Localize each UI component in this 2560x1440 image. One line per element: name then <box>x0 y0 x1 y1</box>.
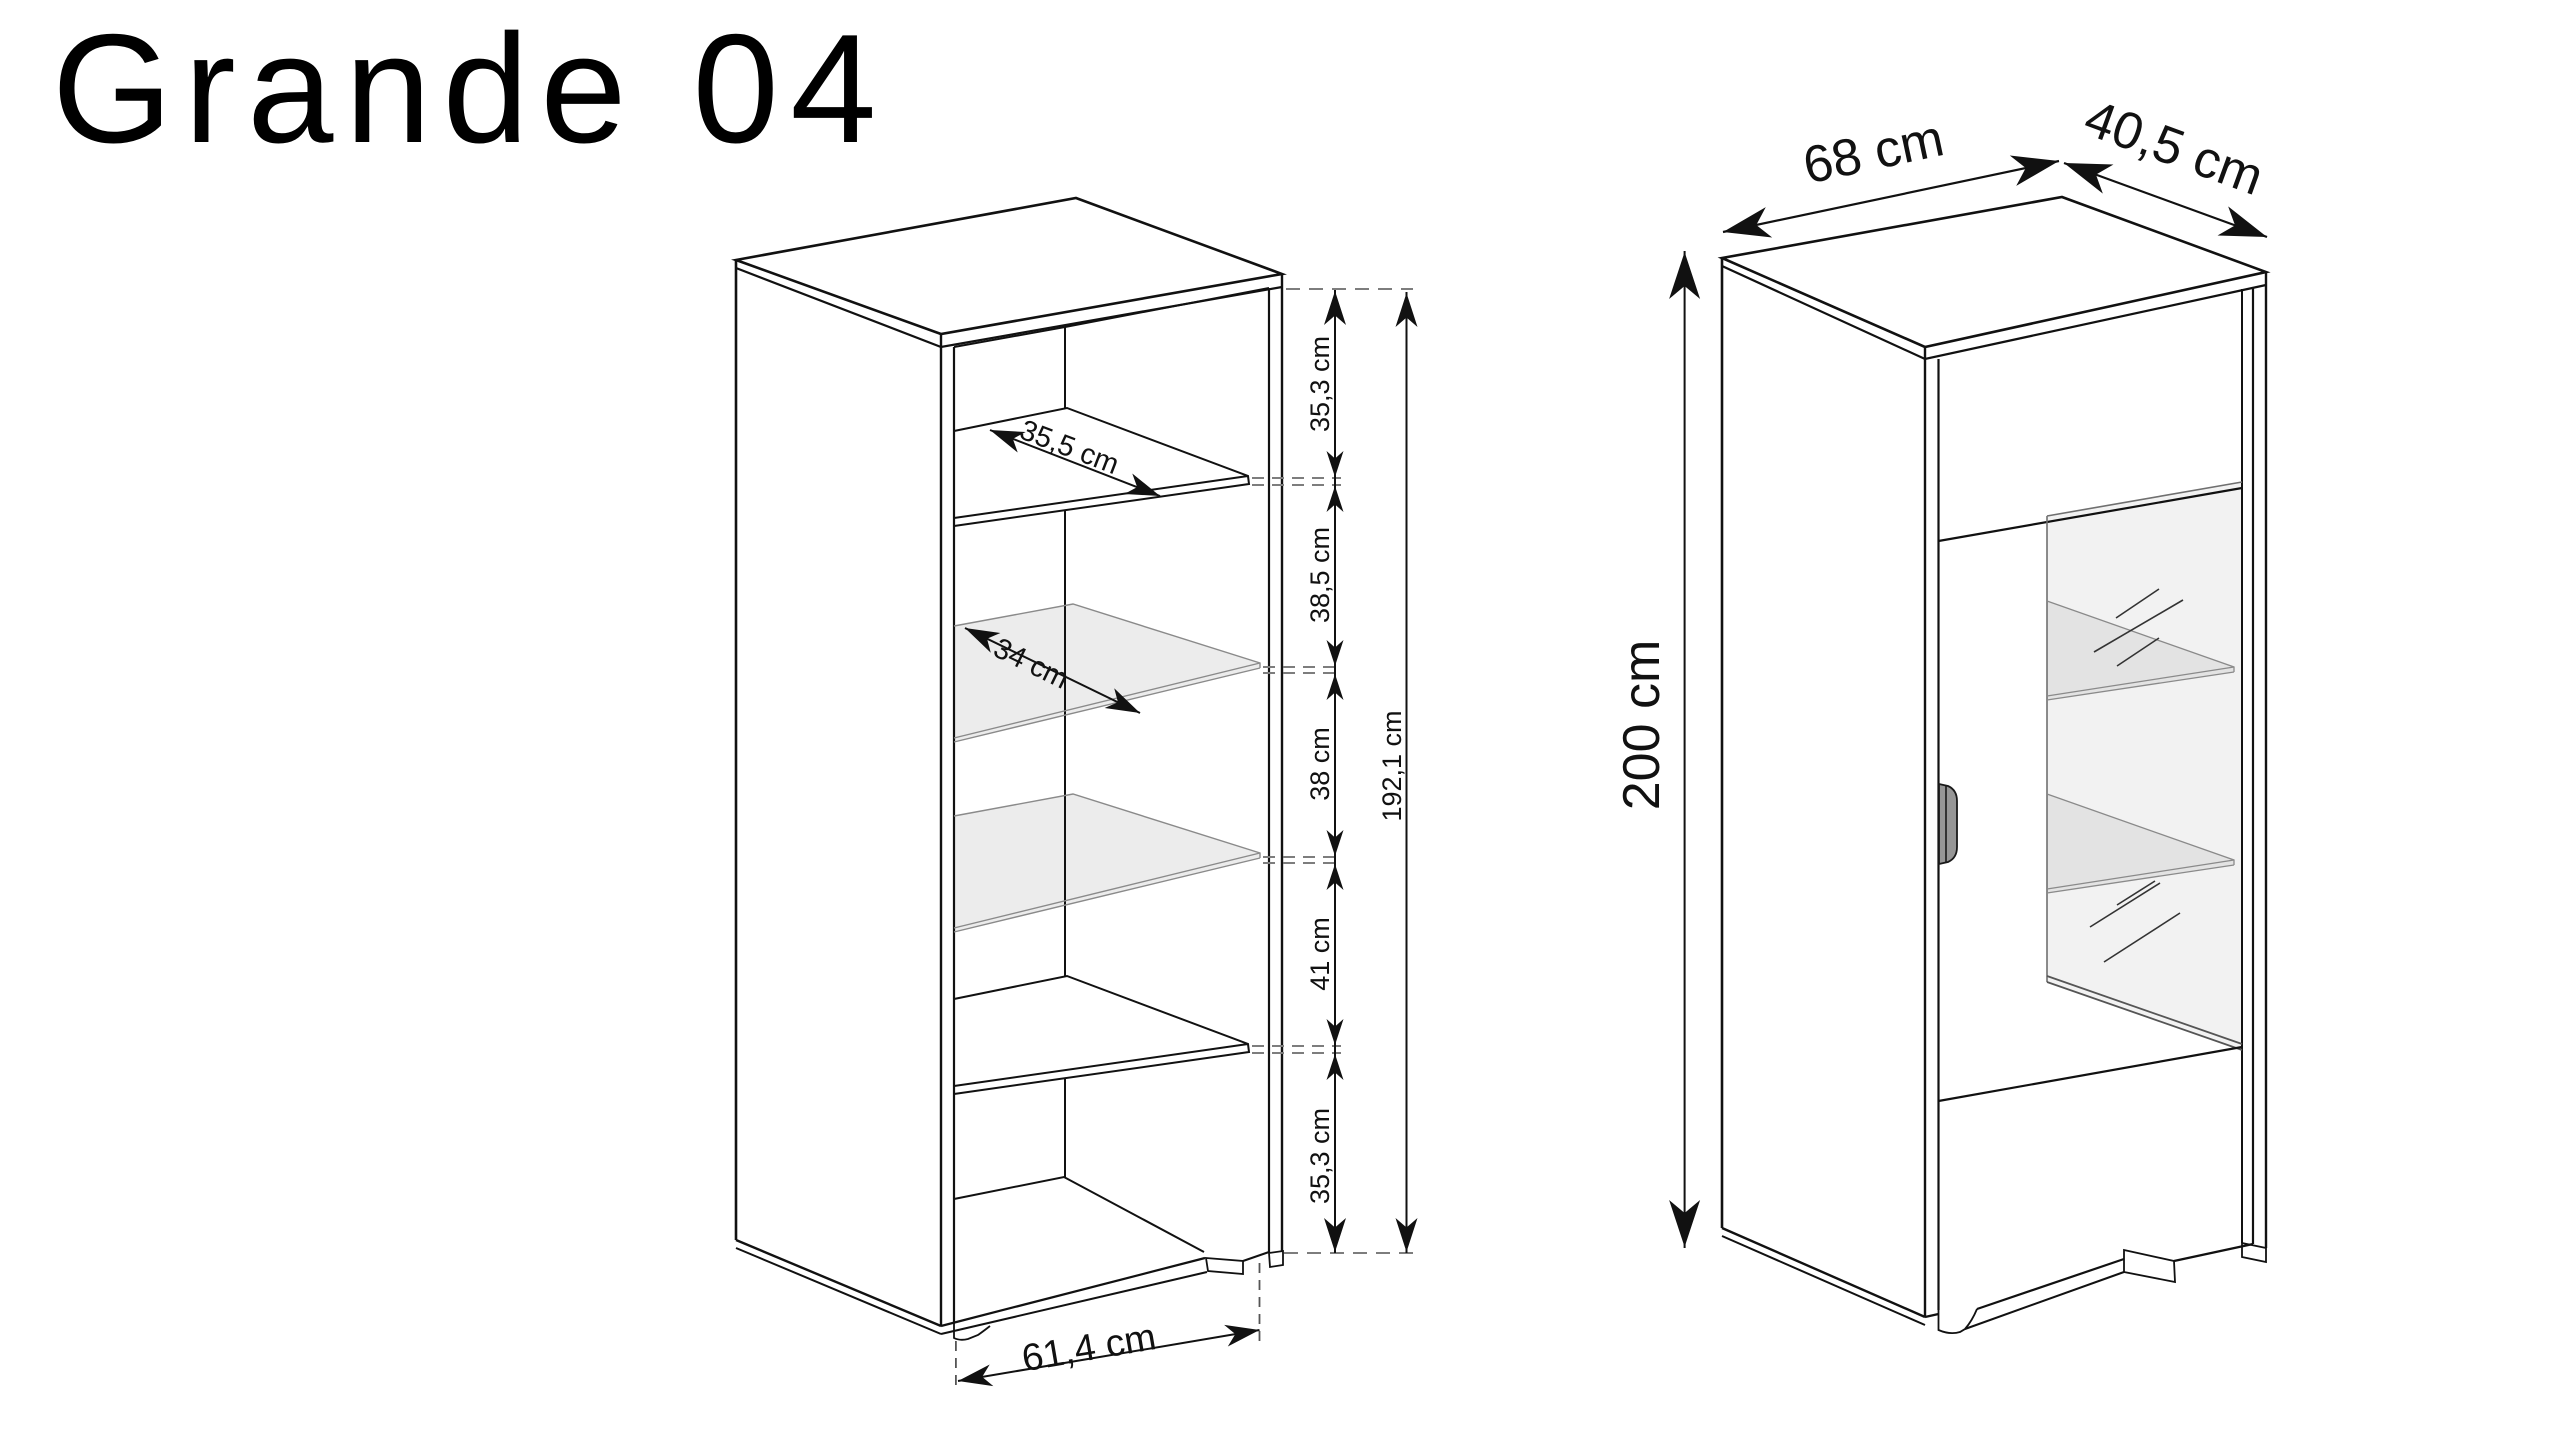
svg-text:35,3 cm: 35,3 cm <box>1305 336 1335 432</box>
svg-text:41 cm: 41 cm <box>1305 917 1335 991</box>
svg-text:38 cm: 38 cm <box>1305 727 1335 801</box>
svg-text:35,3 cm: 35,3 cm <box>1305 1108 1335 1204</box>
svg-text:38,5 cm: 38,5 cm <box>1305 527 1335 623</box>
svg-text:Grande 04: Grande 04 <box>52 2 888 175</box>
svg-text:200 cm: 200 cm <box>1613 640 1671 811</box>
svg-text:192,1 cm: 192,1 cm <box>1377 710 1407 821</box>
